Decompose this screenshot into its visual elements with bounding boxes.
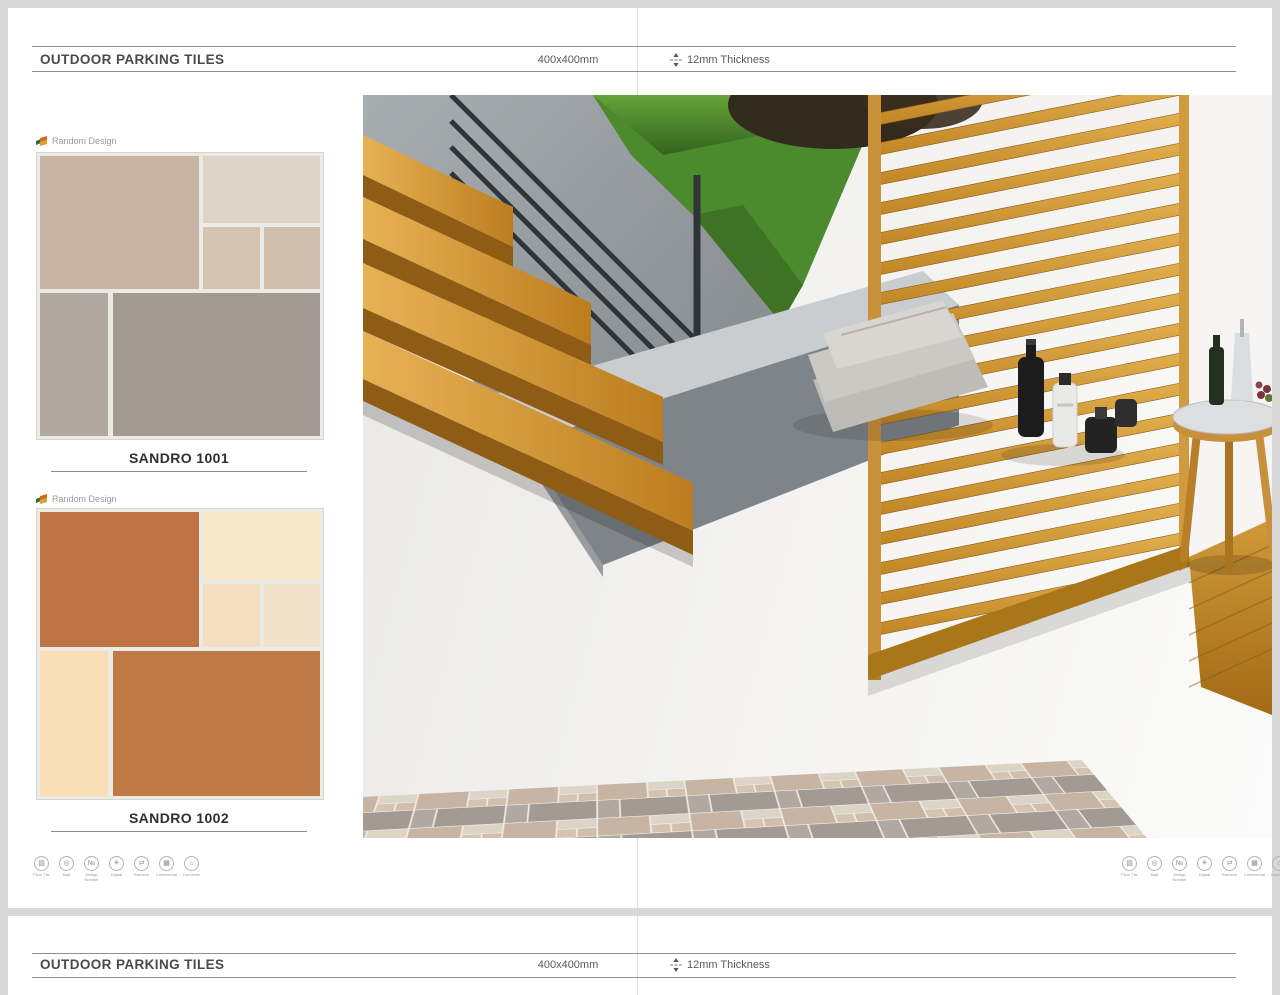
scene-overlay <box>363 95 1272 838</box>
page-title: OUTDOOR PARKING TILES <box>40 957 224 972</box>
swatch-cell <box>40 651 109 796</box>
matt-finish-icon: ◎Matt <box>1145 856 1164 882</box>
random-icon: ⇄Random <box>132 856 151 882</box>
digital-icon: ✳Digital <box>1195 856 1214 882</box>
floor-tile-icon: ▨Floor Tile <box>32 856 51 882</box>
thickness-label-group: 12mm Thickness <box>670 53 770 67</box>
floor-bottles <box>1001 339 1137 466</box>
swatch-cell <box>113 293 320 436</box>
random-design-icon <box>36 494 48 504</box>
domestic-icon: ⌂Domestic <box>182 856 201 882</box>
header-rule-top <box>32 46 1236 47</box>
thickness-icon <box>670 958 682 972</box>
header-rule-bottom <box>32 977 1236 978</box>
next-catalog-page: OUTDOOR PARKING TILES 400x400mm 12mm Thi… <box>8 916 1272 995</box>
floor-tile-icon: ▨Floor Tile <box>1120 856 1139 882</box>
catalog-page: OUTDOOR PARKING TILES 400x400mm 12mm Thi… <box>8 8 1272 908</box>
product-name: SANDRO 1002 <box>36 810 322 826</box>
product-name-rule <box>51 471 307 472</box>
thickness-label-group: 12mm Thickness <box>670 958 770 972</box>
swatch-cell <box>264 227 320 288</box>
page-title: OUTDOOR PARKING TILES <box>40 52 224 67</box>
tile-swatch-sandro-1001 <box>36 152 324 440</box>
badge-label: Random Design <box>52 494 117 504</box>
swatch-cell <box>203 227 260 288</box>
random-design-badge: Random Design <box>36 136 117 146</box>
swatch-cell <box>264 584 320 646</box>
feature-icons-left: ▨Floor Tile ◎Matt №Design Number ✳Digita… <box>32 856 201 882</box>
header-rule-top <box>32 953 1236 954</box>
tile-size-label: 400x400mm <box>508 54 628 66</box>
swatch-cell <box>40 293 109 436</box>
header-rule-bottom <box>32 71 1236 72</box>
product-name: SANDRO 1001 <box>36 450 322 466</box>
room-scene-render <box>363 95 1272 838</box>
swatch-cell <box>203 584 260 646</box>
design-number-icon: №Design Number <box>1170 856 1189 882</box>
thickness-text: 12mm Thickness <box>687 959 770 971</box>
design-number-icon: №Design Number <box>82 856 101 882</box>
swatch-cell <box>40 156 199 289</box>
product-name-rule <box>51 831 307 832</box>
random-icon: ⇄Random <box>1220 856 1239 882</box>
thickness-icon <box>670 53 682 67</box>
feature-icons-right: ▨Floor Tile ◎Matt №Design Number ✳Digita… <box>1120 856 1280 882</box>
random-design-badge: Random Design <box>36 494 117 504</box>
domestic-icon: ⌂Domestic <box>1270 856 1280 882</box>
badge-label: Random Design <box>52 136 117 146</box>
random-design-icon <box>36 136 48 146</box>
matt-finish-icon: ◎Matt <box>57 856 76 882</box>
commercial-icon: ▦Commercial <box>1245 856 1264 882</box>
swatch-cell <box>203 512 320 580</box>
thickness-text: 12mm Thickness <box>687 54 770 66</box>
swatch-cell <box>203 156 320 223</box>
commercial-icon: ▦Commercial <box>157 856 176 882</box>
tile-swatch-sandro-1002 <box>36 508 324 800</box>
swatch-cell <box>113 651 320 796</box>
swatch-cell <box>40 512 199 647</box>
column-divider <box>637 916 638 995</box>
digital-icon: ✳Digital <box>107 856 126 882</box>
tile-size-label: 400x400mm <box>508 959 628 971</box>
